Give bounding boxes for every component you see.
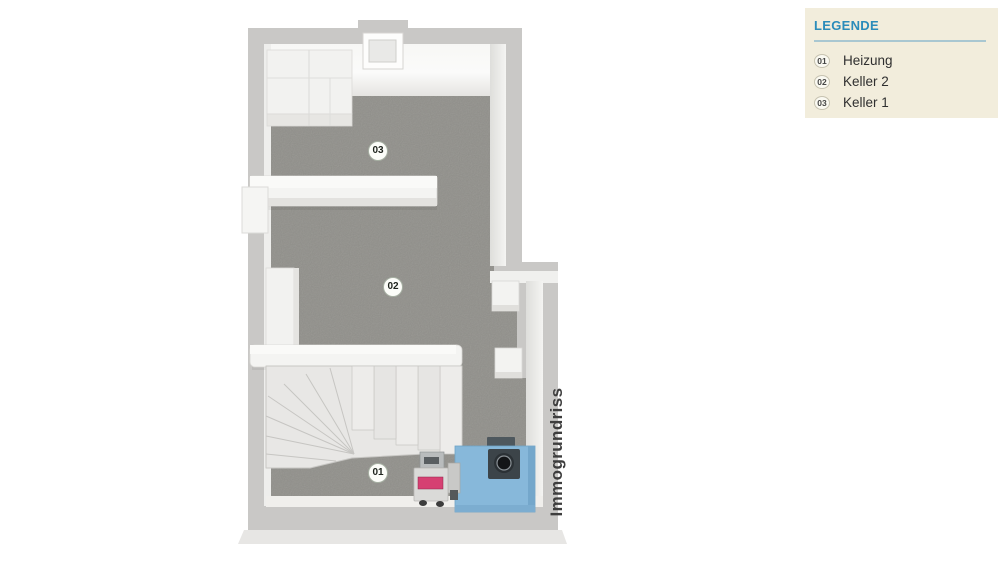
partition-wall-upper (250, 176, 437, 210)
storage-cabinet-large (267, 50, 352, 126)
legend-item-number-badge: 02 (814, 75, 830, 89)
heating-boiler (455, 437, 535, 512)
storage-cabinet-small (266, 268, 299, 346)
legend-title: LEGENDE (814, 18, 986, 33)
watermark-text: Immogrundriss (547, 388, 567, 517)
legend-item: 02 Keller 2 (814, 71, 986, 92)
legend-item-label: Keller 1 (843, 95, 889, 110)
room-badge-01: 01 (368, 463, 388, 483)
burner-accent-stripe (418, 477, 443, 489)
room-badge-02: 02 (383, 277, 403, 297)
floorplan-page: 03 02 01 Immogrundriss LEGENDE 01 Heizun… (0, 0, 1000, 562)
legend-item: 01 Heizung (814, 50, 986, 71)
legend-item: 03 Keller 1 (814, 92, 986, 113)
exterior-door-niche (242, 187, 268, 233)
legend-item-label: Keller 2 (843, 74, 889, 89)
legend-divider (814, 40, 986, 42)
legend-item-number-badge: 03 (814, 96, 830, 110)
room-badge-03: 03 (368, 141, 388, 161)
legend: LEGENDE 01 Heizung 02 Keller 2 03 Keller… (805, 8, 998, 118)
legend-item-label: Heizung (843, 53, 893, 68)
basement-window (363, 33, 403, 69)
building-base-skirt (238, 530, 567, 544)
legend-item-number-badge: 01 (814, 54, 830, 68)
